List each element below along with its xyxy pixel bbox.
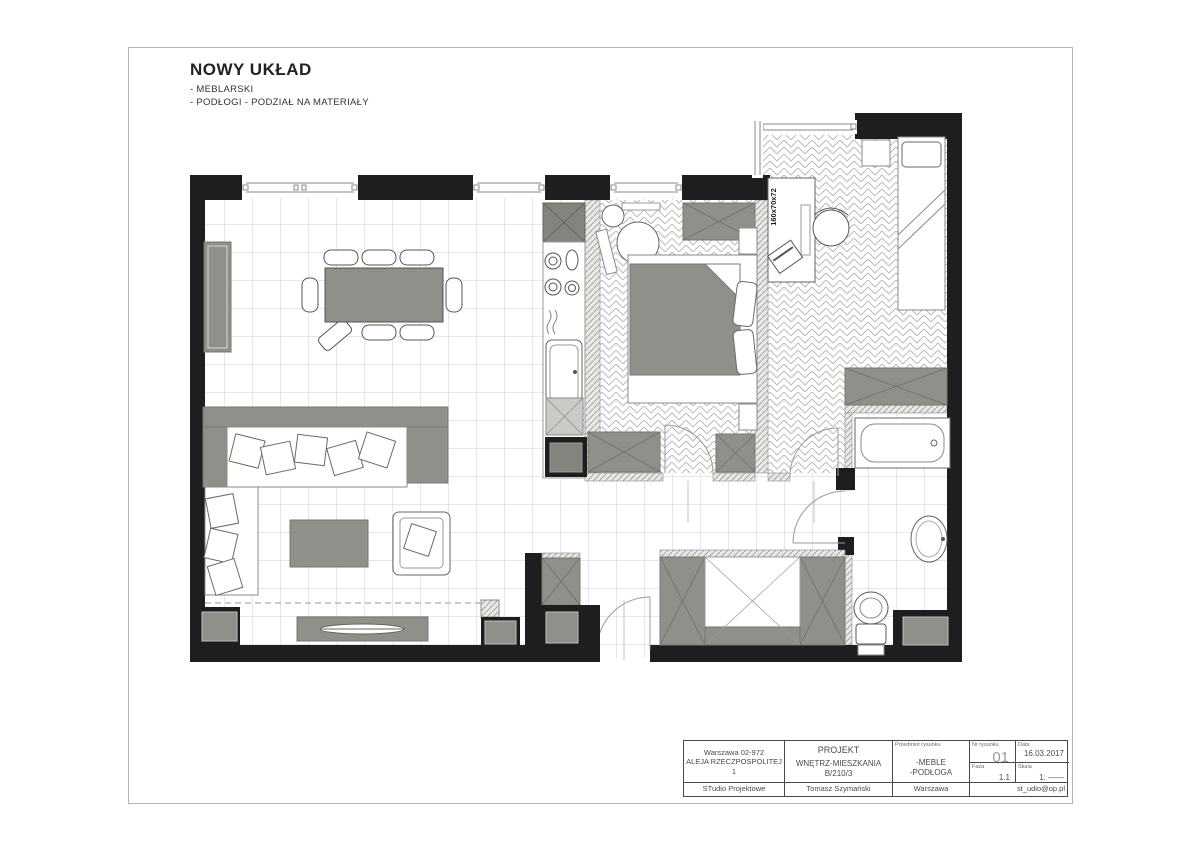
entry-hatch-block — [481, 600, 499, 617]
tb-subject-line1: -MEBLE — [916, 758, 946, 768]
shaft-bottom-left-inner — [202, 612, 237, 641]
armchair — [393, 512, 450, 575]
tb-phase-label: Faza — [972, 764, 984, 770]
hall-wardrobe-right — [800, 557, 845, 645]
wall-bedroom2-hall — [768, 473, 790, 481]
dining-chair — [446, 278, 462, 312]
title-block: Warszawa 02-972 ALEJA RZECZPOSPOLITEJ 1 … — [683, 740, 1068, 797]
bathtub — [855, 418, 950, 468]
dining-chair — [400, 250, 434, 265]
desk-dimensions-label: 160x70x72 — [769, 188, 778, 226]
tb-drawing-no-cell: Nr rysunku 01 — [969, 741, 1015, 762]
tb-project-cell: PROJEKT WNĘTRZ-MIESZKANIA B/210/3 — [784, 741, 892, 783]
tb-address-line2: ALEJA RZECZPOSPOLITEJ 1 — [684, 757, 784, 776]
window-living-1 — [242, 178, 358, 197]
kitchen-shaft-inner — [550, 443, 582, 472]
wall-top-seg1 — [190, 175, 242, 200]
tb-scale-cell: Skala 1: —— — [1015, 762, 1069, 783]
desk-keyboard — [801, 205, 810, 255]
sofa-left-arm — [203, 427, 228, 487]
dining-chair — [362, 250, 396, 265]
wall-right — [947, 113, 962, 662]
entry-wardrobe — [542, 558, 580, 605]
washbasin — [911, 516, 947, 562]
wardrobe-bedroom1-bottom-left — [588, 432, 660, 472]
bed-pillow — [733, 329, 757, 375]
drawing-sheet: NOWY UKŁAD - MEBLARSKI - PODŁOGI - PODZI… — [0, 0, 1200, 849]
nightstand-bedroom2 — [862, 140, 890, 166]
tb-city: Warszawa — [892, 781, 969, 796]
wall-bedroom1-hall-left — [585, 473, 663, 481]
hall-wardrobe-base — [705, 627, 800, 645]
tb-project-name: WNĘTRZ-MIESZKANIA — [796, 759, 881, 769]
wall-bedroom1-hall-right — [713, 473, 755, 481]
entry-shaft-inner — [485, 621, 516, 644]
tb-drawing-no-label: Nr rysunku — [972, 742, 999, 748]
floor-plan: 160x70x72 — [0, 0, 1200, 849]
coffee-table — [290, 520, 368, 567]
kitchen — [543, 203, 587, 478]
dining-chair — [324, 250, 358, 265]
window-bedroom2-side — [752, 118, 763, 178]
tb-phase-cell: Faza 1.1 — [969, 762, 1015, 783]
wardrobe-bedroom2 — [845, 368, 947, 405]
wall-bathroom-top — [845, 405, 947, 413]
wall-bathroom-left-lower — [845, 540, 852, 645]
tb-date-label: Data — [1018, 742, 1030, 748]
nightstand — [739, 228, 757, 254]
dining-chair — [302, 278, 318, 312]
tb-project-title: PROJEKT — [818, 745, 860, 756]
tb-date-cell: Data 16.03.2017 — [1015, 741, 1069, 762]
tb-subject-label: Przedmiot rysunku — [895, 742, 941, 748]
kitchen-cabinet-x — [546, 398, 583, 435]
wall-top-seg3 — [545, 175, 610, 200]
tv-stand — [297, 617, 428, 641]
entry-wall-vertical — [525, 553, 542, 650]
window-bedroom2-top — [757, 120, 857, 134]
basin-tap — [941, 537, 945, 541]
wall-top-bedroom2 — [855, 113, 962, 139]
hall-wardrobe-left — [660, 557, 705, 645]
tb-email: st_udio@op.pl — [969, 781, 1069, 796]
tb-subject-line2: -PODŁOGA — [910, 768, 952, 778]
parquet-floor-bedroom2-entry — [763, 405, 845, 473]
double-bed — [628, 255, 758, 403]
toilet-shelf — [858, 645, 884, 655]
tb-address-cell: Warszawa 02-972 ALEJA RZECZPOSPOLITEJ 1 — [684, 741, 784, 783]
wall-jamb-bathroom-corner — [836, 468, 855, 490]
hall-wardrobe-top-wall — [660, 550, 845, 557]
dining-chair — [400, 325, 434, 340]
toilet-tank — [856, 624, 886, 644]
wall-top-seg2 — [358, 175, 473, 200]
bathroom-corner-cabinet — [903, 617, 948, 645]
sofa-backrest — [203, 407, 448, 427]
dressing-shelf — [622, 203, 660, 210]
dressing-stool — [602, 205, 624, 227]
tb-author: Tomasz Szymański — [784, 781, 892, 796]
tb-address-line1: Warszawa 02-972 — [704, 748, 764, 757]
hallway-wardrobe — [660, 550, 845, 645]
nightstand — [739, 404, 757, 430]
dining-table — [325, 268, 443, 322]
dining-chair — [362, 325, 396, 340]
bed2-pillow — [902, 142, 941, 167]
wall-top-seg4 — [682, 175, 770, 200]
hall-wardrobe-middle — [705, 557, 800, 627]
tb-studio: STudio Projektowe — [684, 781, 784, 796]
entry-wardrobe-top-wall — [542, 553, 580, 558]
window-living-2 — [473, 178, 545, 197]
toilet — [854, 592, 888, 655]
sink-tap — [573, 370, 577, 374]
tb-subject-cell: Przedmiot rysunku -MEBLE -PODŁOGA — [892, 741, 969, 783]
entry-cabinet — [546, 612, 578, 643]
wardrobe-bedroom1-bottom-right — [716, 434, 755, 472]
single-bed — [898, 137, 945, 310]
tb-scale-label: Skala — [1018, 764, 1032, 770]
sofa-right-arm — [407, 427, 448, 483]
window-bedroom1 — [610, 178, 682, 197]
tb-project-number: B/210/3 — [825, 769, 853, 779]
kitchen-sink — [546, 340, 582, 406]
fridge — [543, 203, 585, 242]
